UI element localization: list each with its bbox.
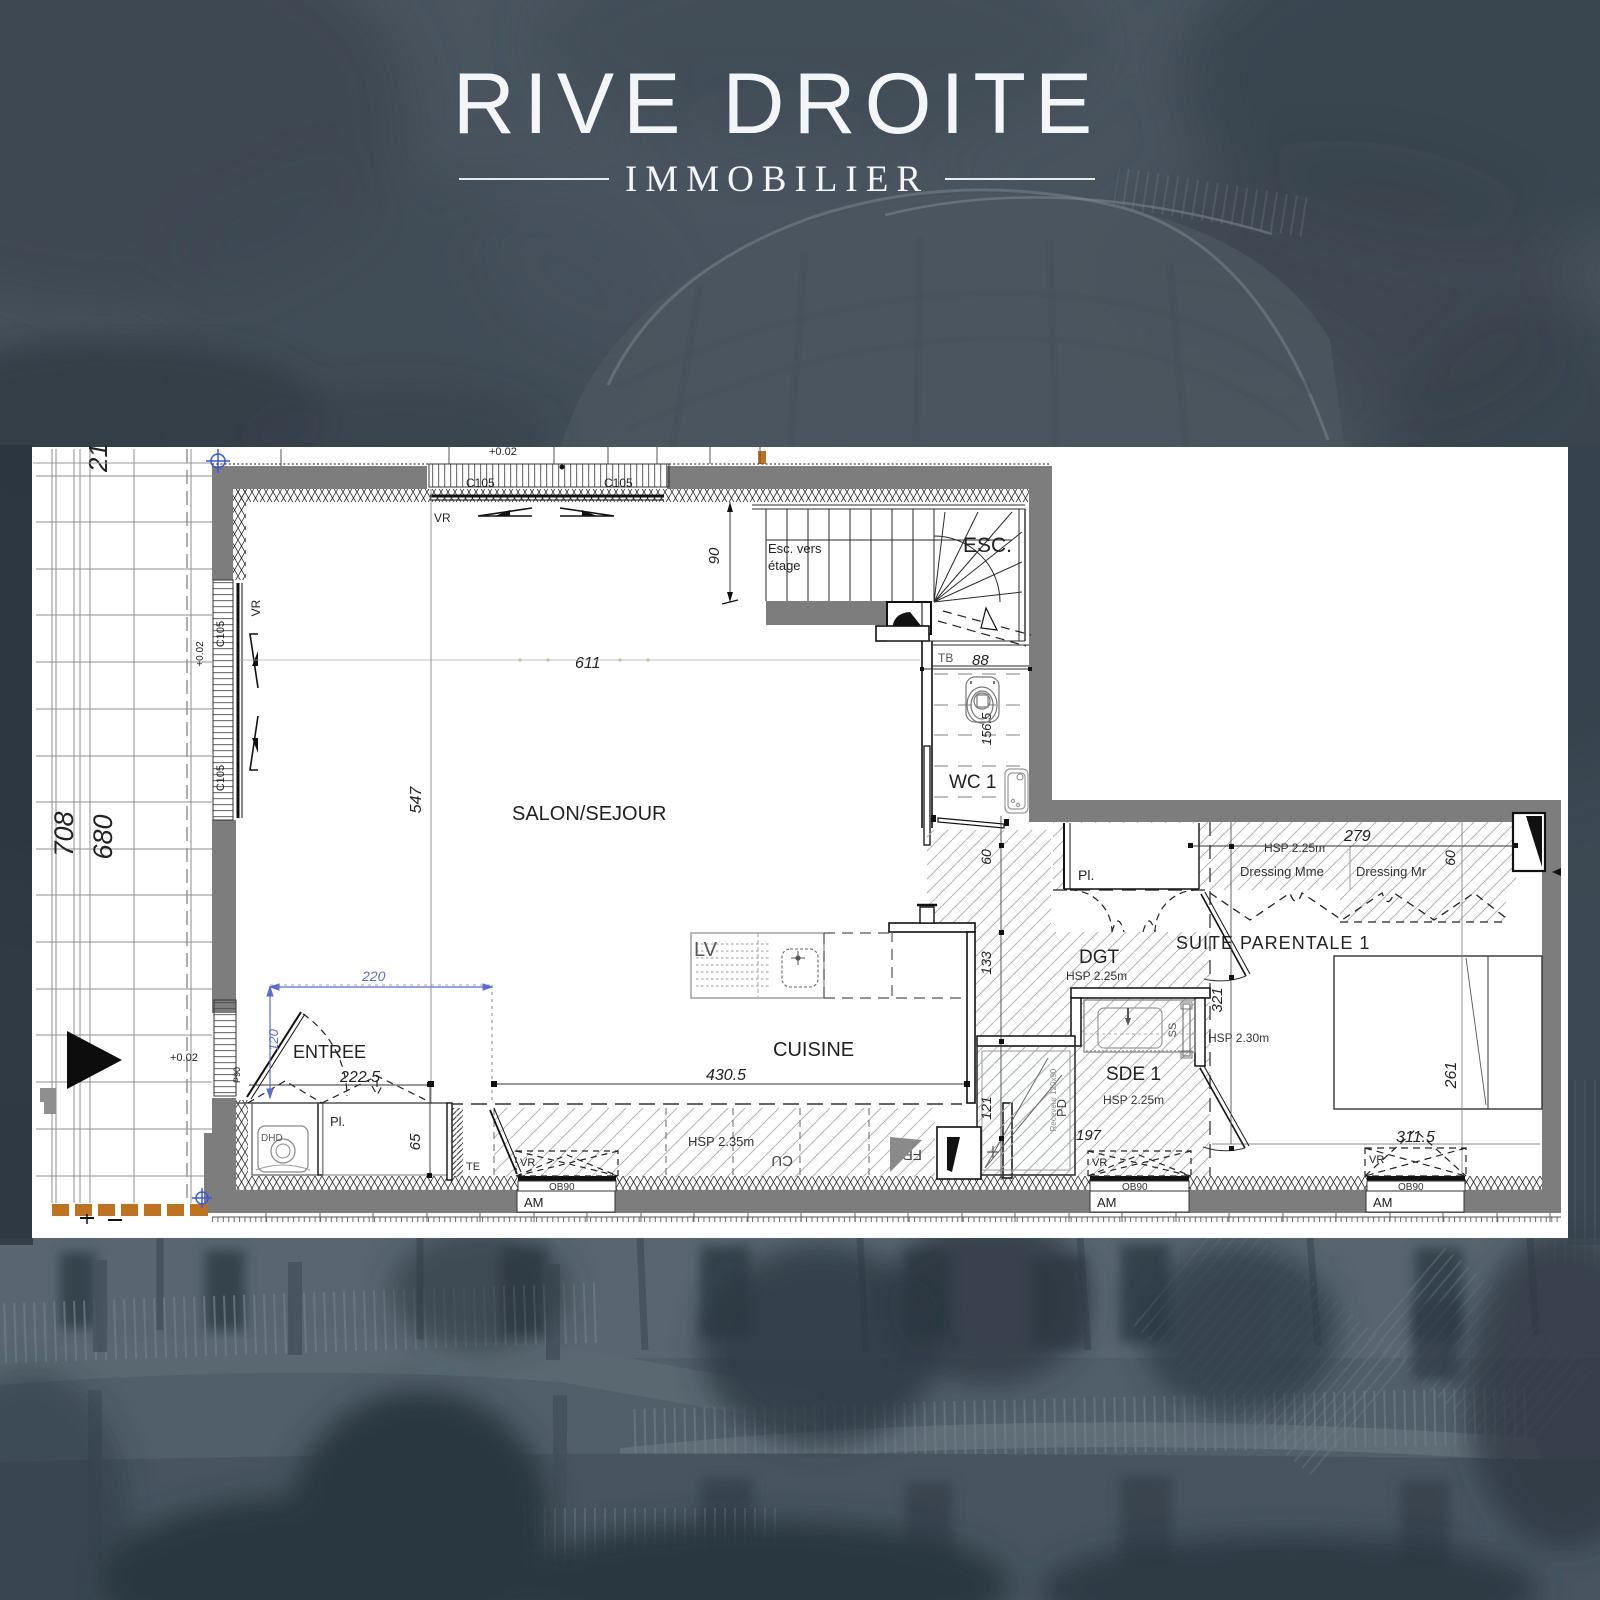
- svg-text:220: 220: [361, 968, 386, 984]
- svg-text:680: 680: [88, 814, 118, 859]
- svg-text:HSP 2.30m: HSP 2.30m: [1208, 1031, 1269, 1045]
- svg-text:AM: AM: [1373, 1195, 1393, 1210]
- svg-text:VR: VR: [1092, 1157, 1107, 1169]
- svg-text:60: 60: [1442, 850, 1458, 866]
- svg-text:708: 708: [49, 811, 79, 856]
- svg-text:SDE 1: SDE 1: [1106, 1064, 1161, 1085]
- svg-text:430.5: 430.5: [706, 1067, 746, 1084]
- svg-text:CU: CU: [771, 1152, 793, 1169]
- svg-text:VR: VR: [249, 599, 263, 616]
- svg-text:DHD: DHD: [261, 1133, 283, 1144]
- svg-text:Esc. vers: Esc. vers: [768, 541, 822, 556]
- svg-text:120: 120: [266, 1028, 281, 1050]
- svg-text:LV: LV: [694, 939, 718, 961]
- svg-text:étage: étage: [768, 558, 801, 573]
- svg-text:AM: AM: [1097, 1195, 1117, 1210]
- svg-text:88: 88: [972, 652, 989, 669]
- svg-text:SS: SS: [1167, 1023, 1179, 1038]
- svg-text:Pl.: Pl.: [1078, 867, 1094, 883]
- svg-text:60: 60: [978, 849, 994, 865]
- svg-text:AM: AM: [524, 1195, 544, 1210]
- svg-text:SUITE PARENTALE 1: SUITE PARENTALE 1: [1176, 933, 1370, 953]
- svg-text:TE: TE: [466, 1161, 480, 1173]
- svg-text:VR: VR: [434, 511, 451, 525]
- svg-text:VR: VR: [520, 1157, 535, 1169]
- svg-text:Receveur 120x90: Receveur 120x90: [1049, 1068, 1058, 1131]
- svg-text:90: 90: [706, 547, 723, 564]
- svg-text:C105: C105: [215, 621, 227, 647]
- svg-text:HSP 2.25m: HSP 2.25m: [1264, 841, 1325, 855]
- svg-text:+0.02: +0.02: [195, 641, 206, 667]
- svg-text:133: 133: [978, 951, 994, 975]
- svg-text:Dressing Mme: Dressing Mme: [1240, 864, 1324, 879]
- svg-text:P90: P90: [232, 1067, 242, 1083]
- svg-text:ENTREE: ENTREE: [293, 1042, 366, 1062]
- svg-text:WC 1: WC 1: [949, 772, 997, 793]
- svg-text:TB: TB: [938, 651, 953, 665]
- svg-text:SALON/SEJOUR: SALON/SEJOUR: [512, 803, 666, 825]
- svg-text:C105: C105: [466, 476, 495, 490]
- svg-text:DGT: DGT: [1079, 947, 1120, 968]
- svg-text:611: 611: [575, 655, 601, 672]
- svg-text:279: 279: [1343, 828, 1371, 845]
- svg-text:VR: VR: [1369, 1154, 1384, 1166]
- svg-text:HSP 2.25m: HSP 2.25m: [1103, 1093, 1164, 1107]
- svg-text:Pl.: Pl.: [330, 1114, 345, 1129]
- svg-text:ESC.: ESC.: [963, 534, 1012, 557]
- svg-text:C105: C105: [604, 476, 633, 490]
- svg-text:CUISINE: CUISINE: [773, 1039, 854, 1061]
- svg-text:65: 65: [407, 1133, 424, 1150]
- svg-text:222.5: 222.5: [339, 1069, 380, 1086]
- svg-text:HSP 2.35m: HSP 2.35m: [688, 1134, 754, 1149]
- svg-text:321: 321: [1209, 987, 1226, 1012]
- svg-text:+0.02: +0.02: [170, 1052, 198, 1064]
- svg-text:261: 261: [1443, 1062, 1460, 1090]
- svg-text:197: 197: [1076, 1127, 1102, 1144]
- svg-text:C105: C105: [215, 765, 227, 791]
- svg-text:HSP 2.25m: HSP 2.25m: [1066, 969, 1127, 983]
- svg-text:+0.02: +0.02: [489, 446, 517, 458]
- svg-text:121: 121: [978, 1096, 994, 1119]
- svg-text:156.5: 156.5: [979, 712, 994, 745]
- svg-text:21: 21: [83, 443, 113, 473]
- svg-text:Dressing Mr: Dressing Mr: [1356, 864, 1427, 879]
- svg-text:547: 547: [408, 786, 425, 814]
